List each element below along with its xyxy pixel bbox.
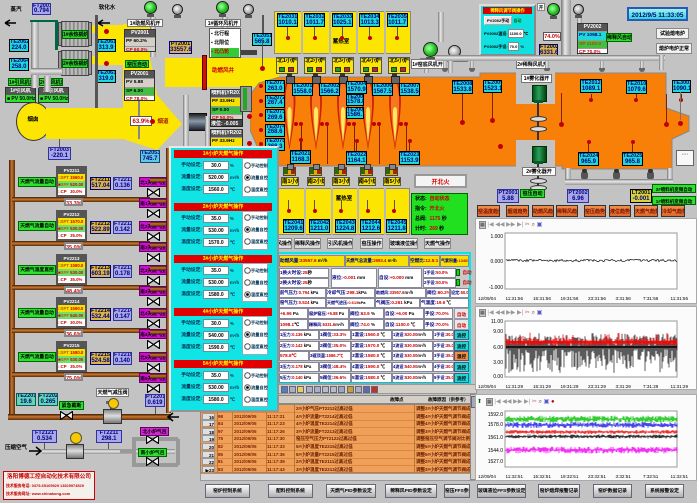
svg-text:12/09/04: 12/09/04 xyxy=(478,296,496,301)
svg-text:12/09/04: 12/09/04 xyxy=(478,384,496,389)
svg-text:7:31:56: 7:31:56 xyxy=(643,296,659,301)
svg-text:11:32:51: 11:32:51 xyxy=(671,474,689,479)
svg-text:12/09/04: 12/09/04 xyxy=(478,474,496,479)
svg-text:0.00: 0.00 xyxy=(493,374,503,380)
svg-text:6.00: 6.00 xyxy=(493,345,503,351)
svg-text:1561.0: 1561.0 xyxy=(488,435,504,441)
svg-text:3.00: 3.00 xyxy=(493,360,503,366)
svg-text:15:32:51: 15:32:51 xyxy=(533,474,551,479)
svg-text:11:32:51: 11:32:51 xyxy=(506,474,524,479)
svg-text:1578.0: 1578.0 xyxy=(488,422,504,428)
svg-text:23:31:29: 23:31:29 xyxy=(588,384,606,389)
svg-text:19:31:56: 19:31:56 xyxy=(561,296,579,301)
svg-text:11:31:56: 11:31:56 xyxy=(506,296,524,301)
svg-text:3:31:56: 3:31:56 xyxy=(616,296,632,301)
svg-text:1527.0: 1527.0 xyxy=(488,459,504,465)
svg-text:9.00: 9.00 xyxy=(493,329,503,335)
svg-text:11:31:29: 11:31:29 xyxy=(671,384,689,389)
svg-text:3:31:29: 3:31:29 xyxy=(616,384,632,389)
svg-text:-1.000: -1.000 xyxy=(489,285,503,291)
svg-text:15:31:56: 15:31:56 xyxy=(533,296,551,301)
svg-text:19:31:29: 19:31:29 xyxy=(561,384,579,389)
svg-text:1.000: 1.000 xyxy=(490,234,503,240)
svg-text:23:31:56: 23:31:56 xyxy=(588,296,606,301)
svg-text:0.000: 0.000 xyxy=(490,259,503,265)
svg-text:19:32:51: 19:32:51 xyxy=(561,474,579,479)
svg-text:3:32:51: 3:32:51 xyxy=(616,474,632,479)
svg-text:7:31:29: 7:31:29 xyxy=(643,384,659,389)
svg-text:7:32:51: 7:32:51 xyxy=(643,474,659,479)
svg-text:1592.0: 1592.0 xyxy=(488,412,504,418)
svg-text:1544.0: 1544.0 xyxy=(488,448,504,454)
svg-text:23:32:51: 23:32:51 xyxy=(588,474,606,479)
svg-text:15:31:29: 15:31:29 xyxy=(533,384,551,389)
svg-text:11:31:29: 11:31:29 xyxy=(506,384,524,389)
svg-text:11.00: 11.00 xyxy=(491,319,503,325)
svg-text:11:31:56: 11:31:56 xyxy=(671,296,689,301)
